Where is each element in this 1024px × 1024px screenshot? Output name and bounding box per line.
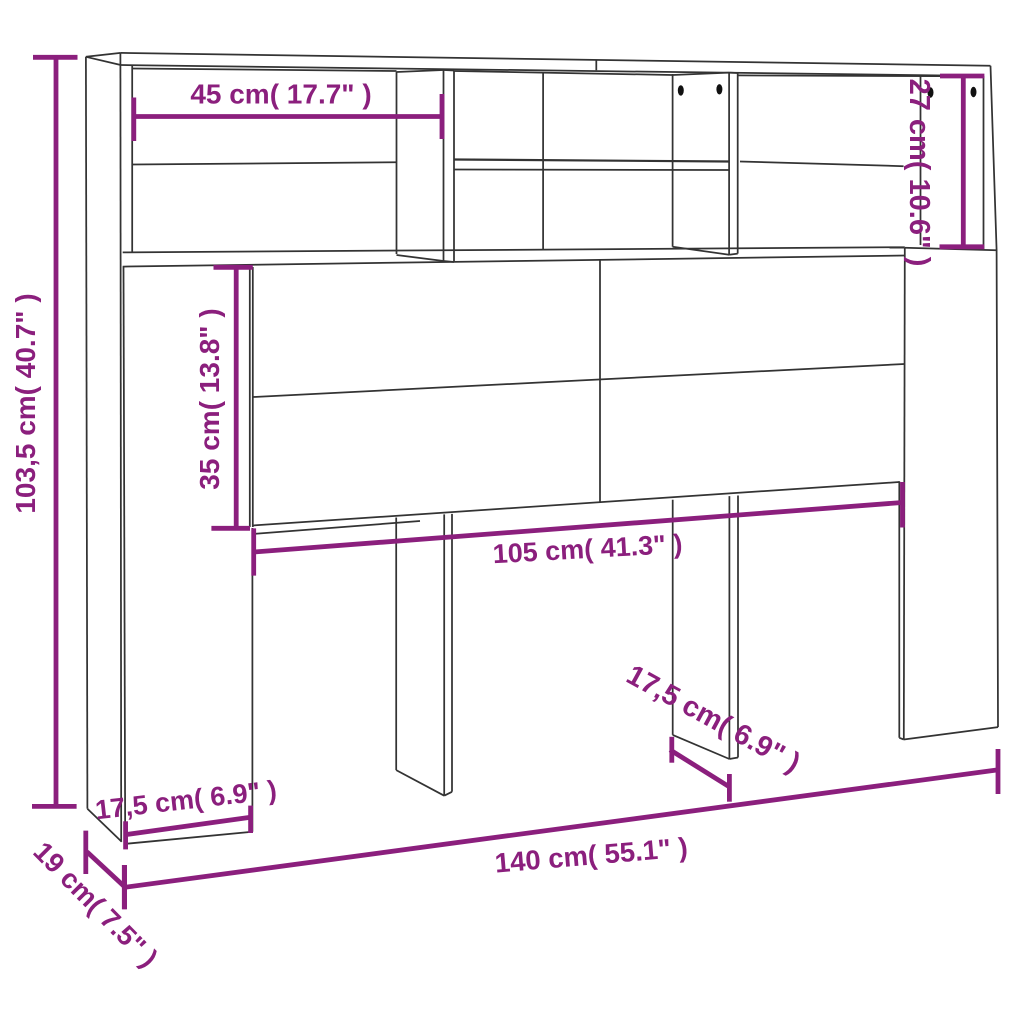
svg-text:103,5 cm( 40.7" ): 103,5 cm( 40.7" ) (10, 293, 41, 513)
svg-text:35 cm( 13.8" ): 35 cm( 13.8" ) (194, 308, 225, 489)
svg-text:27 cm( 10.6" ): 27 cm( 10.6" ) (903, 79, 935, 267)
svg-text:45 cm( 17.7" ): 45 cm( 17.7" ) (190, 79, 371, 110)
